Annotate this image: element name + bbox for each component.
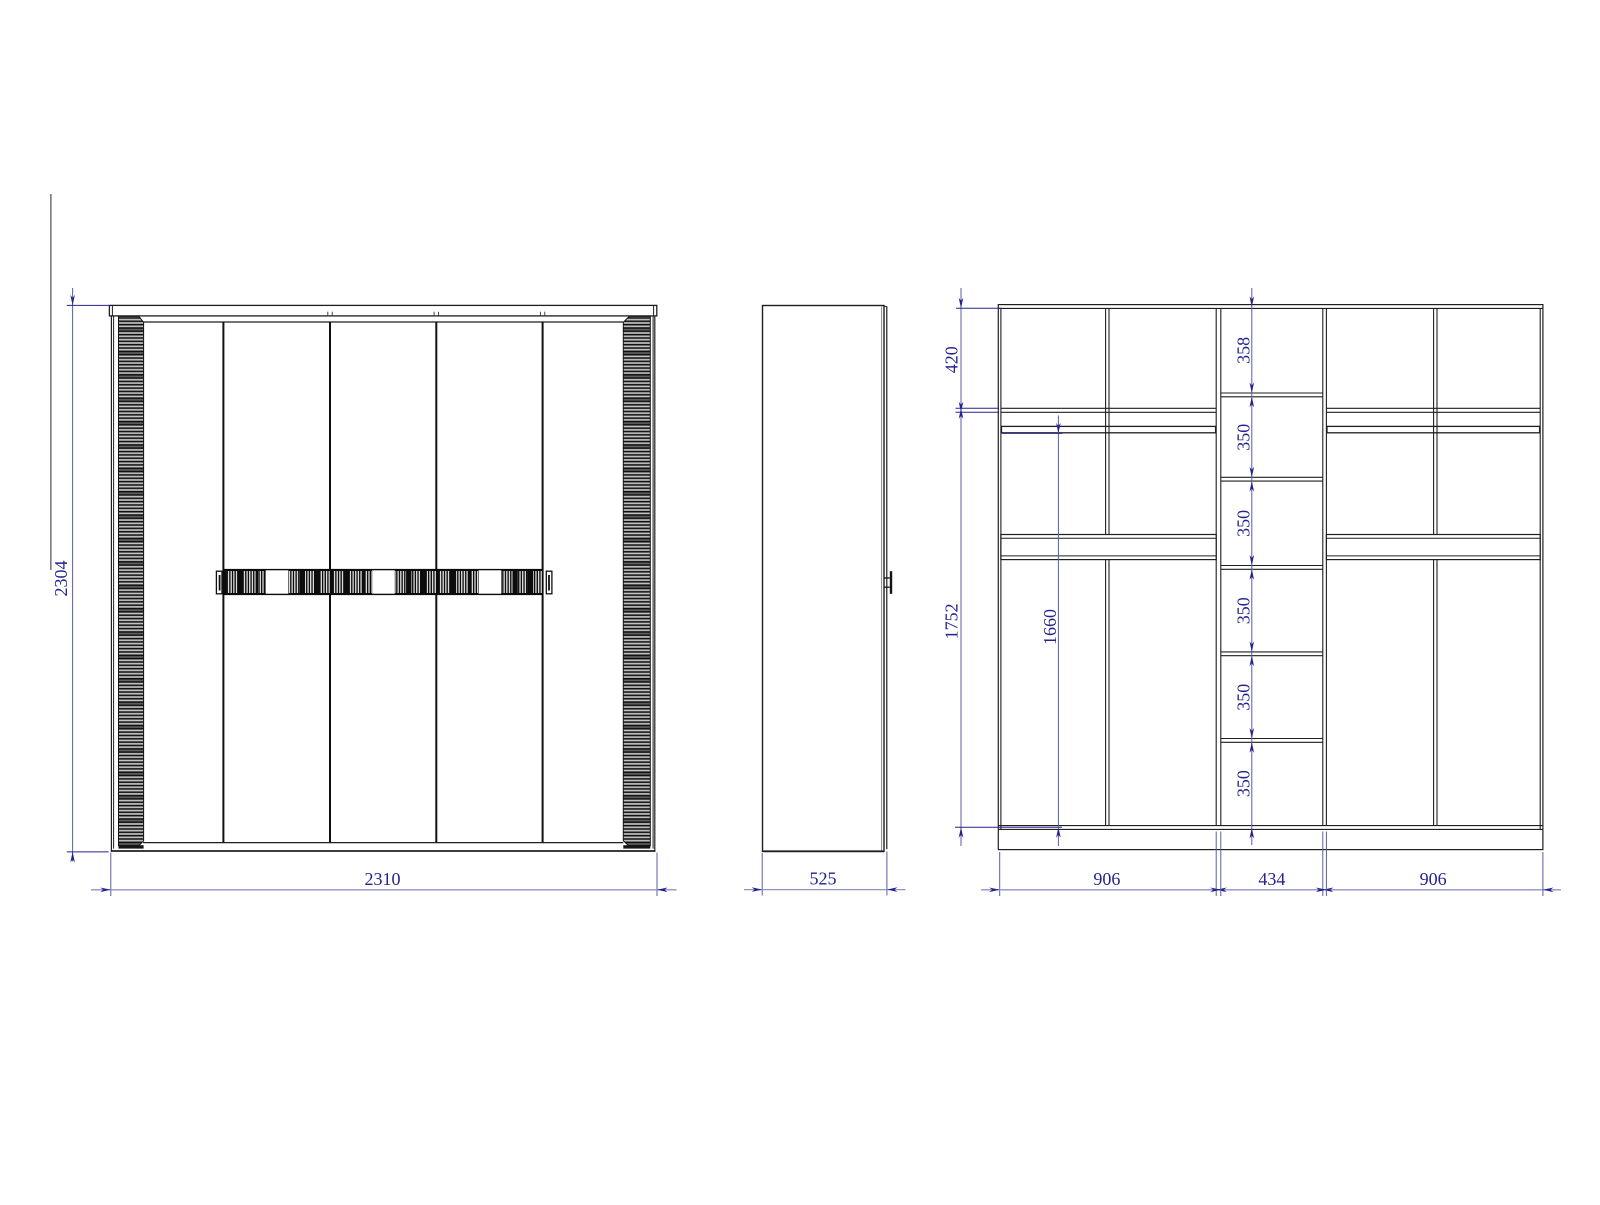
svg-text:358: 358 — [1233, 337, 1253, 364]
svg-text:350: 350 — [1233, 770, 1253, 797]
svg-text:2310: 2310 — [365, 869, 401, 889]
svg-text:2304: 2304 — [51, 561, 71, 597]
svg-text:350: 350 — [1233, 424, 1253, 451]
svg-text:420: 420 — [942, 346, 962, 373]
svg-text:350: 350 — [1233, 597, 1253, 624]
svg-text:350: 350 — [1233, 510, 1253, 537]
svg-text:1752: 1752 — [942, 603, 962, 639]
svg-text:525: 525 — [810, 869, 837, 889]
svg-text:906: 906 — [1093, 869, 1120, 889]
svg-text:350: 350 — [1233, 684, 1253, 711]
svg-text:906: 906 — [1420, 869, 1447, 889]
svg-text:434: 434 — [1258, 869, 1285, 889]
svg-text:1660: 1660 — [1040, 609, 1060, 645]
